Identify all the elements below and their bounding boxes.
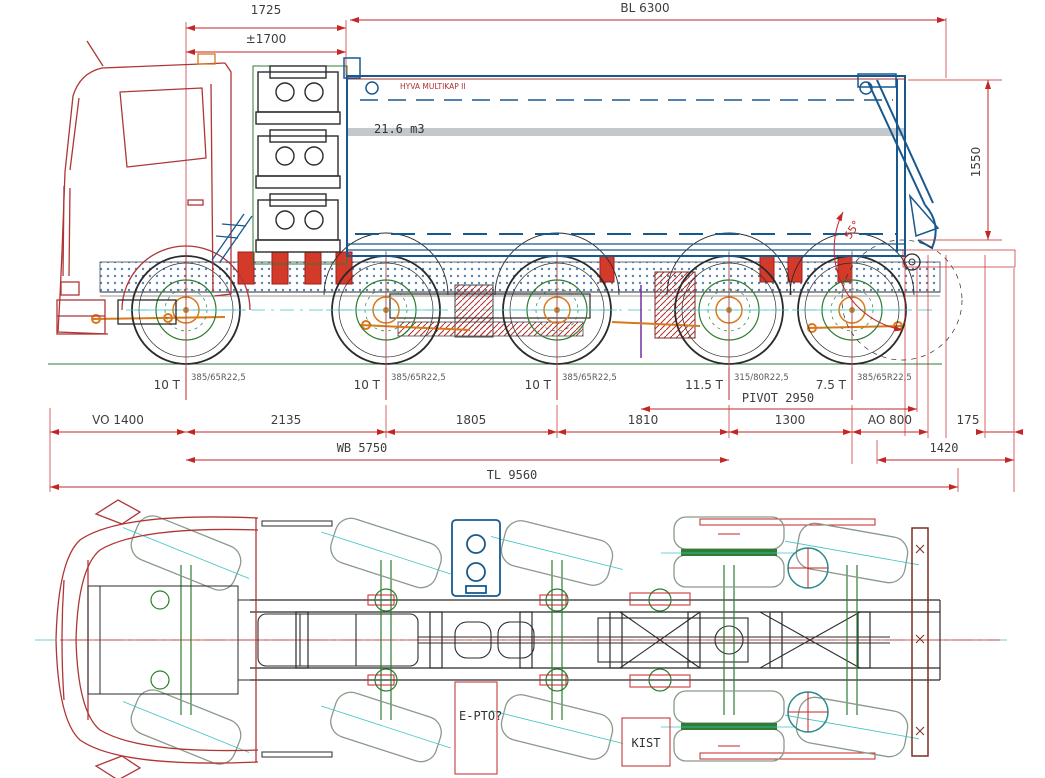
axle5-load: 7.5 T xyxy=(816,378,847,392)
pto-box: E-PTO? xyxy=(455,682,502,774)
cad-truck-drawing: HYVA MULTIKAP II 21.6 m3 55° 1725 ±1700 xyxy=(0,0,1045,778)
container-body: HYVA MULTIKAP II 21.6 m3 xyxy=(344,58,905,256)
dim-1725: 1725 xyxy=(251,3,282,17)
wheel-top xyxy=(781,693,923,762)
tip-angle-label: 55° xyxy=(842,218,864,241)
dim-wb-5750: WB 5750 xyxy=(337,441,388,455)
axle3-tire: 385/65R22,5 xyxy=(562,373,617,383)
top-view: E-PTO? KIST xyxy=(35,500,1010,778)
side-view: HYVA MULTIKAP II 21.6 m3 55° 1725 ±1700 xyxy=(48,1,1015,492)
wheel-top xyxy=(485,514,628,592)
dim-1700: ±1700 xyxy=(246,32,287,46)
tank-step xyxy=(398,322,583,336)
wheel-top xyxy=(781,519,923,588)
body-rail-mark-bottom xyxy=(262,752,332,757)
axle1-tire: 385/65R22,5 xyxy=(191,373,246,383)
dim-bl-6300: BL 6300 xyxy=(620,1,669,15)
body-rail-mark-top xyxy=(262,521,332,526)
axle2-load: 10 T xyxy=(354,378,381,392)
kist-box: KIST xyxy=(622,718,670,766)
body-stack xyxy=(212,66,347,264)
chassis-rail xyxy=(100,262,940,296)
dim-1300: 1300 xyxy=(775,413,806,427)
body-volume-label: 21.6 m3 xyxy=(374,122,425,136)
dim-vo-1400: VO 1400 xyxy=(92,413,144,427)
dim-1805: 1805 xyxy=(456,413,487,427)
axle2-tire: 385/65R22,5 xyxy=(391,373,446,383)
dim-2135: 2135 xyxy=(271,413,302,427)
pto-label: E-PTO? xyxy=(459,709,502,723)
axle4-load: 11.5 T xyxy=(685,378,724,392)
dim-ao-800: AO 800 xyxy=(868,413,912,427)
rear-bumper-top xyxy=(912,528,928,756)
kist-label: KIST xyxy=(632,736,661,750)
dim-175: 175 xyxy=(957,413,980,427)
wheel-top xyxy=(314,510,458,596)
dim-1550: 1550 xyxy=(969,147,983,178)
wheel-top xyxy=(314,684,458,770)
axle4-tire: 315/80R22,5 xyxy=(734,373,789,383)
wheel-top-dual xyxy=(661,691,797,761)
dim-1420: 1420 xyxy=(930,441,959,455)
dim-pivot: PIVOT 2950 xyxy=(742,391,814,405)
wheel-top xyxy=(485,688,628,766)
dim-tl-9560: TL 9560 xyxy=(487,468,538,482)
axle1-load: 10 T xyxy=(154,378,181,392)
body-brand-label: HYVA MULTIKAP II xyxy=(400,82,466,91)
axle3-load: 10 T xyxy=(525,378,552,392)
dim-1810: 1810 xyxy=(628,413,659,427)
dimensions-bottom: PIVOT 2950 VO 1400 2135 1805 1810 1300 A… xyxy=(50,391,1014,492)
wheel-top-dual xyxy=(661,517,797,587)
drawing-canvas: HYVA MULTIKAP II 21.6 m3 55° 1725 ±1700 xyxy=(0,0,1045,778)
axle5-tire: 385/65R22,5 xyxy=(857,373,912,383)
fuel-tank-top xyxy=(452,520,500,596)
